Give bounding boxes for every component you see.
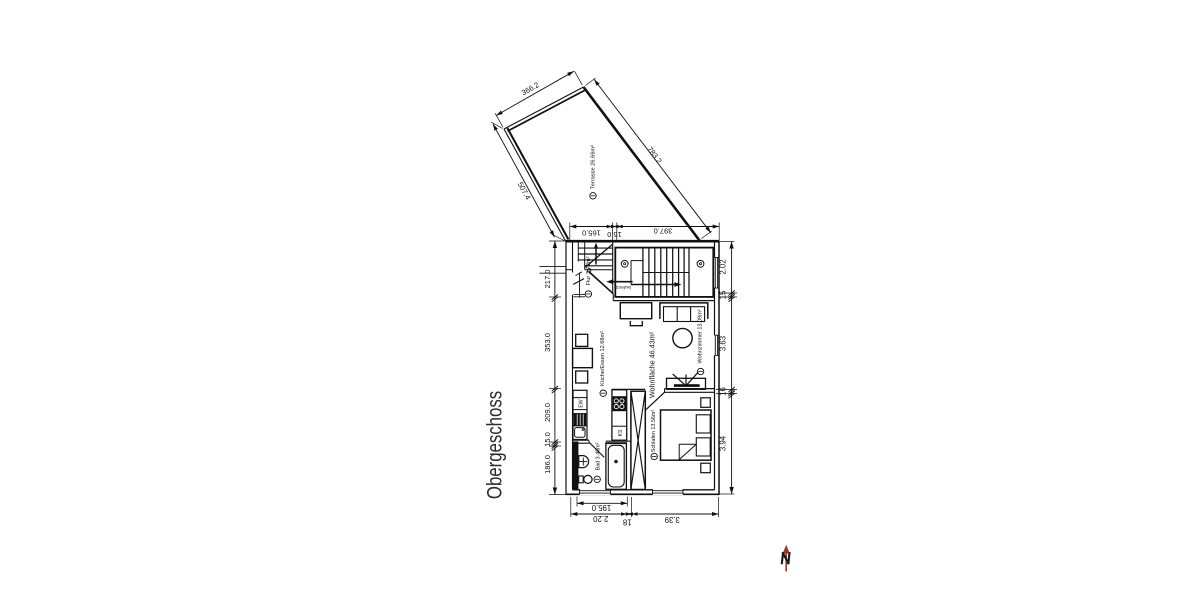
svg-text:397.0: 397.0 [654,226,673,235]
svg-text:laufen2: laufen2 [616,285,632,290]
svg-text:165.0: 165.0 [582,229,601,238]
svg-text:16: 16 [719,387,728,396]
svg-text:2.20: 2.20 [593,514,609,523]
svg-text:Terrasse 26.66m²: Terrasse 26.66m² [590,145,596,189]
svg-text:15.0: 15.0 [543,432,552,447]
svg-text:EW: EW [579,399,585,407]
svg-text:15: 15 [719,290,728,299]
svg-text:3.39: 3.39 [665,515,680,524]
svg-text:Wohnzimmer 13.09m²: Wohnzimmer 13.09m² [698,309,704,363]
svg-text:3.63: 3.63 [719,336,728,351]
svg-text:209.0: 209.0 [543,403,552,422]
svg-text:353.0: 353.0 [543,333,552,352]
svg-text:2.02: 2.02 [719,259,728,274]
svg-text:217.0: 217.0 [543,270,552,289]
svg-text:Schlafen 13.56m²: Schlafen 13.56m² [651,410,657,452]
svg-text:195.0: 195.0 [591,503,611,512]
svg-text:KS: KS [618,429,624,436]
svg-text:Obergeschoss: Obergeschoss [484,391,507,499]
svg-text:Wohnfläche 46.43m²: Wohnfläche 46.43m² [648,331,657,398]
svg-text:Küche/Essen 12.68m²: Küche/Essen 12.68m² [600,331,606,386]
svg-text:3.94: 3.94 [719,435,728,451]
svg-text:Bad 3.46m²: Bad 3.46m² [596,442,602,470]
svg-text:Flur 3.72m²: Flur 3.72m² [586,256,592,285]
svg-text:186.0: 186.0 [543,455,552,474]
svg-text:18: 18 [623,518,632,527]
svg-text:15.0: 15.0 [607,230,622,239]
